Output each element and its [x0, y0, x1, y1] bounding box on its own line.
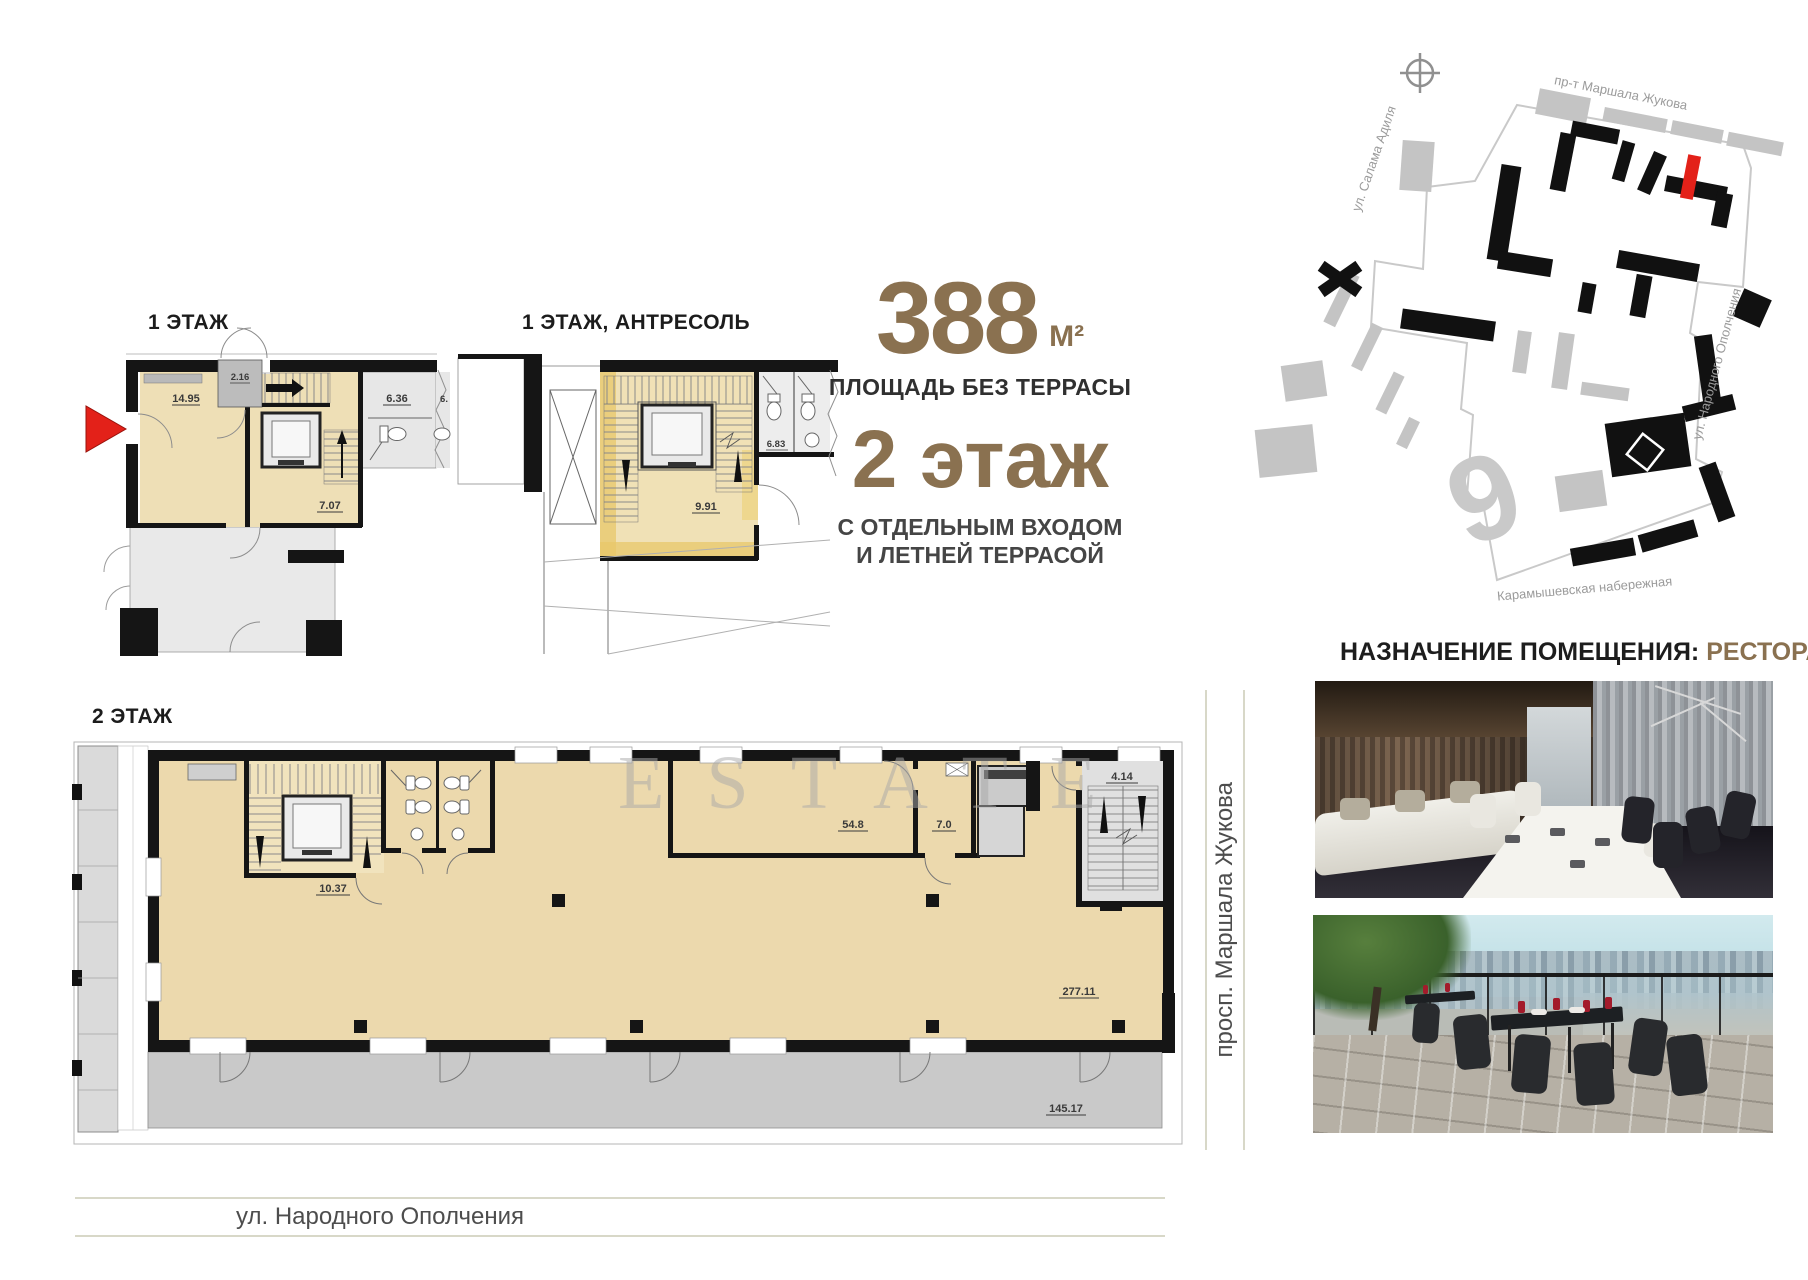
- area-unit: М²: [1049, 320, 1084, 362]
- floor1-plan: 14.95 2.16 6.36 6. 7.07: [80, 310, 452, 682]
- purpose-label: НАЗНАЧЕНИЕ ПОМЕЩЕНИЯ:: [1340, 638, 1699, 666]
- floor-sub-line2: И ЛЕТНЕЙ ТЕРРАСОЙ: [820, 541, 1140, 569]
- vestibule-room: [218, 360, 262, 407]
- elevator: [638, 402, 716, 470]
- room-label-terrace: 145.17: [1049, 1103, 1083, 1115]
- street-band-right: просп. Маршала Жукова: [1205, 690, 1245, 1150]
- room-label-wc: 6.83: [767, 439, 786, 450]
- room-label-stairhall: 10.37: [319, 883, 347, 895]
- area-value: 388: [876, 276, 1037, 362]
- entrance-arrow-marker: [86, 406, 126, 452]
- room-label-stairhall: 9.91: [695, 501, 716, 513]
- street-band-right-label: просп. Маршала Жукова: [1211, 782, 1239, 1057]
- restaurant-interior-photo: [1315, 681, 1773, 898]
- terrace-photo: [1313, 915, 1773, 1133]
- room-label-vestibule: 2.16: [231, 372, 250, 383]
- street-band-bottom-label: ул. Народного Ополчения: [75, 1203, 685, 1231]
- purpose-value: РЕСТОРАН: [1706, 638, 1808, 666]
- map-street-left: ул. Салама Адиля: [1349, 104, 1399, 213]
- street-band-bottom: ул. Народного Ополчения: [75, 1197, 1165, 1237]
- floor2-plan-title: 2 ЭТАЖ: [92, 705, 173, 729]
- room-label-openspace: 277.11: [1062, 986, 1095, 998]
- floor-sub-line1: С ОТДЕЛЬНЫМ ВХОДОМ: [820, 513, 1140, 541]
- offer-summary: 388 М² ПЛОЩАДЬ БЕЗ ТЕРРАСЫ 2 этаж С ОТДЕ…: [820, 276, 1140, 569]
- map-street-bottom: Карамышевская набережная: [1496, 573, 1672, 603]
- purpose-heading: НАЗНАЧЕНИЕ ПОМЕЩЕНИЯ: РЕСТОРАН: [1340, 638, 1800, 667]
- location-map: 9 пр-т Маршала Жуко: [1165, 35, 1805, 615]
- elevator: [262, 413, 320, 467]
- mezzanine-plan: 9.91 6.83: [450, 310, 848, 662]
- compass-icon: [1400, 53, 1440, 93]
- room-label-hall: 14.95: [172, 393, 200, 405]
- room-label-wc2: 6.: [440, 394, 448, 405]
- floor-title: 2 этаж: [820, 421, 1140, 499]
- brochure-page: 1 ЭТАЖ 1 ЭТАЖ, АНТРЕСОЛЬ 2 ЭТАЖ: [0, 0, 1808, 1280]
- room-label-wc: 6.36: [386, 393, 407, 405]
- terrace-area: [148, 1052, 1162, 1128]
- area-caption: ПЛОЩАДЬ БЕЗ ТЕРРАСЫ: [820, 374, 1140, 401]
- room-label-stairhall: 7.07: [319, 500, 340, 512]
- estate-watermark: ESTATE: [618, 740, 1138, 827]
